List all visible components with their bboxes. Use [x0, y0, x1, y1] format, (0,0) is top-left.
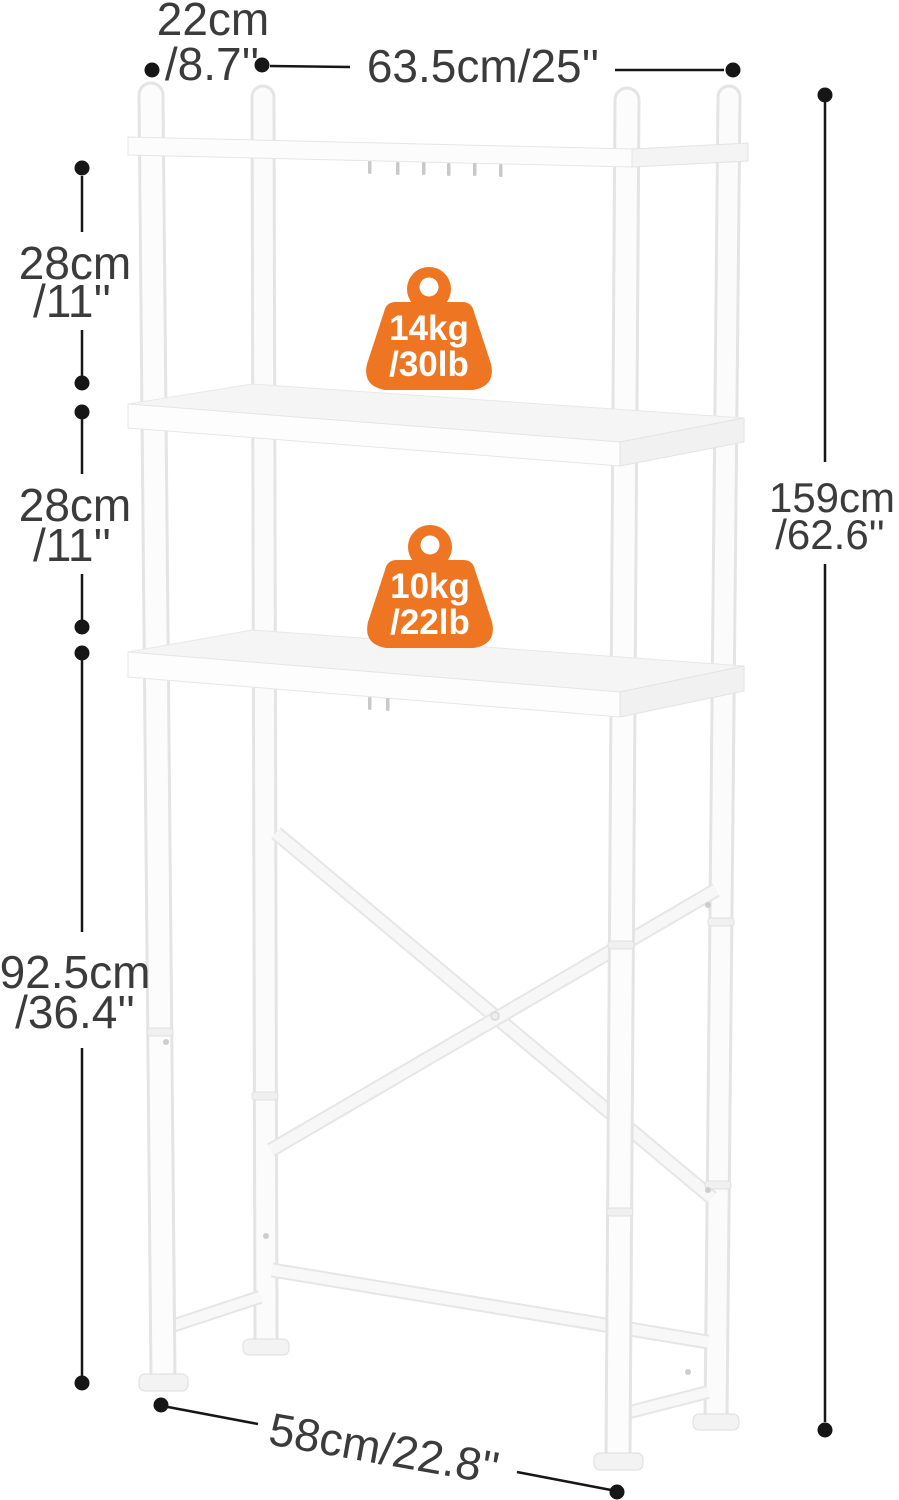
rear-right-leg: [716, 97, 729, 1417]
brace-center-bolt: [491, 1012, 499, 1020]
weight-capacity-badge-upper: 14kg /30lb: [366, 267, 492, 390]
middle-shelf: [128, 384, 744, 466]
dim-leg-height-inch: /36.4'': [15, 986, 135, 1038]
dim-bottom-width: 58cm/22.8'': [265, 1403, 503, 1495]
rear-left-foot: [243, 1339, 289, 1355]
right-side-bar: [626, 1392, 708, 1413]
lower-shelf-capacity-lb: /22lb: [390, 603, 470, 642]
top-shelf: [128, 137, 748, 167]
diagram-svg: 14kg /30lb 10kg /22lb: [0, 0, 899, 1500]
front-left-leg: [151, 95, 163, 1378]
upper-shelf-capacity-lb: /30lb: [389, 345, 469, 384]
rear-left-leg: [263, 97, 266, 1342]
lower-shelf-capacity-kg: 10kg: [390, 567, 470, 606]
front-right-leg: [618, 100, 627, 1456]
dim-top-depth-inch: /8.7'': [165, 38, 259, 90]
x-cross-brace: [271, 833, 716, 1198]
lower-shelf-hooks: [368, 697, 390, 711]
left-side-bar: [172, 1297, 260, 1326]
dim-upper-gap-inch: /11'': [33, 275, 111, 327]
upper-shelf-capacity-kg: 14kg: [389, 309, 469, 348]
rear-bottom-bar: [272, 1270, 708, 1342]
weight-capacity-badge-lower: 10kg /22lb: [367, 525, 493, 648]
dim-middle-gap-inch: /11'': [33, 519, 111, 571]
front-right-foot: [594, 1453, 643, 1470]
front-left-foot: [139, 1374, 188, 1391]
product-dimension-diagram: 14kg /30lb 10kg /22lb: [0, 0, 899, 1500]
dim-top-width: 63.5cm/25'': [367, 40, 599, 92]
rear-right-foot: [693, 1414, 739, 1430]
dim-total-height-inch: /62.6'': [775, 511, 884, 558]
